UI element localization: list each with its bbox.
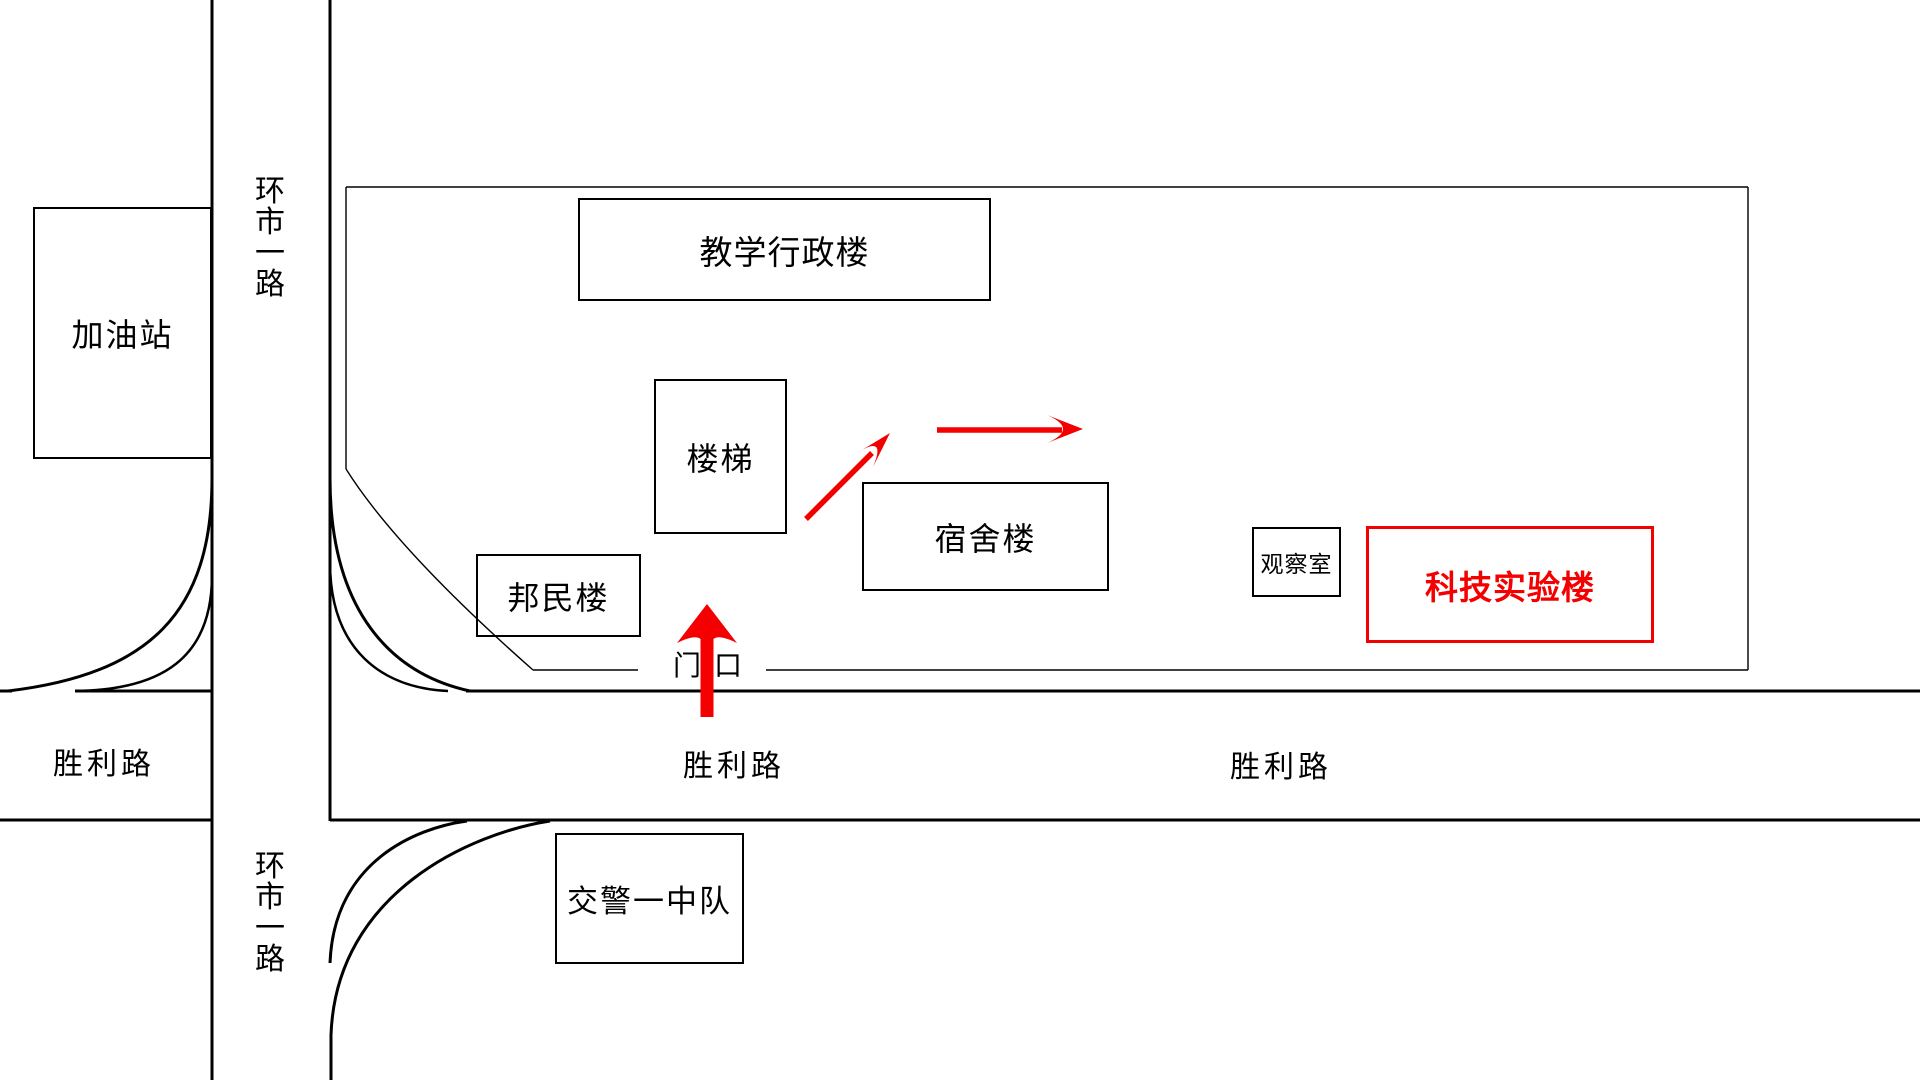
route-arrow-up [677, 604, 737, 717]
map-canvas: 加油站 教学行政楼 楼梯 邦民楼 宿舍楼 观察室 科技实验楼 交警一中队 环市一… [0, 0, 1920, 1080]
route-arrow-up-right-shaft [806, 453, 872, 519]
route-arrows-drawing [0, 0, 1920, 1080]
